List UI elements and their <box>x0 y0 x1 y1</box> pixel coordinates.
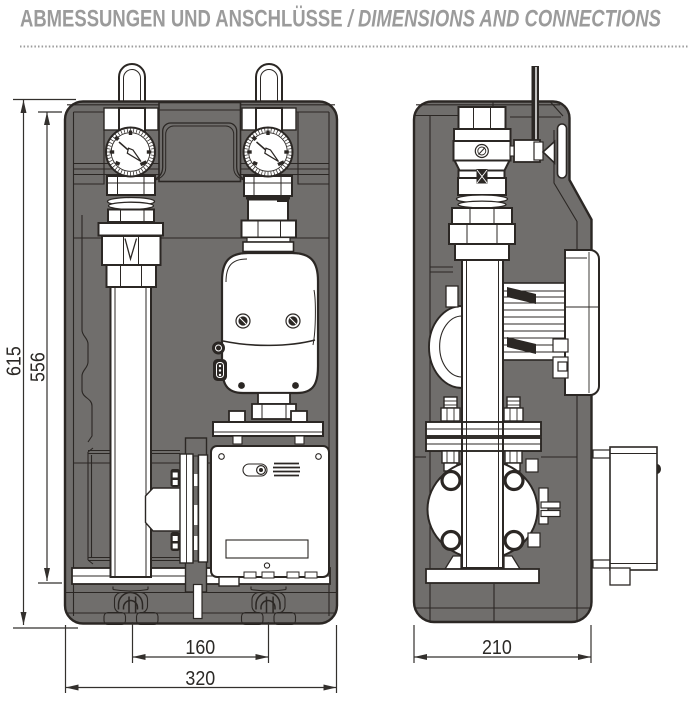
svg-text:556: 556 <box>28 352 50 382</box>
svg-text:210: 210 <box>482 637 512 659</box>
svg-text:ABMESSUNGEN UND ANSCHLÜSSE / D: ABMESSUNGEN UND ANSCHLÜSSE / DIMENSIONS … <box>20 4 662 32</box>
svg-text:160: 160 <box>185 637 215 659</box>
svg-text:320: 320 <box>185 668 215 690</box>
svg-text:615: 615 <box>3 346 25 376</box>
